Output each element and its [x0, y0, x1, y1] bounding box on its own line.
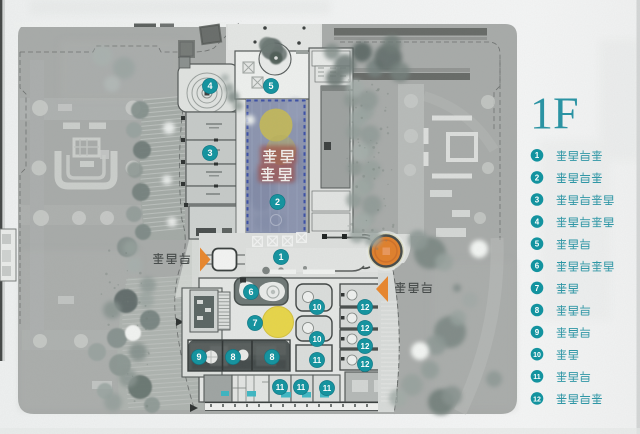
- svg-text:11: 11: [533, 374, 541, 381]
- svg-text:7: 7: [535, 284, 540, 293]
- svg-text:10: 10: [533, 352, 541, 359]
- svg-text:1F: 1F: [530, 88, 579, 139]
- svg-text:2: 2: [535, 173, 540, 182]
- svg-text:4: 4: [535, 218, 540, 227]
- svg-text:1: 1: [535, 151, 540, 160]
- svg-text:8: 8: [535, 306, 540, 315]
- svg-text:9: 9: [535, 328, 540, 337]
- svg-text:5: 5: [535, 240, 540, 249]
- svg-text:3: 3: [535, 195, 540, 204]
- svg-text:6: 6: [535, 262, 540, 271]
- svg-text:12: 12: [533, 396, 541, 403]
